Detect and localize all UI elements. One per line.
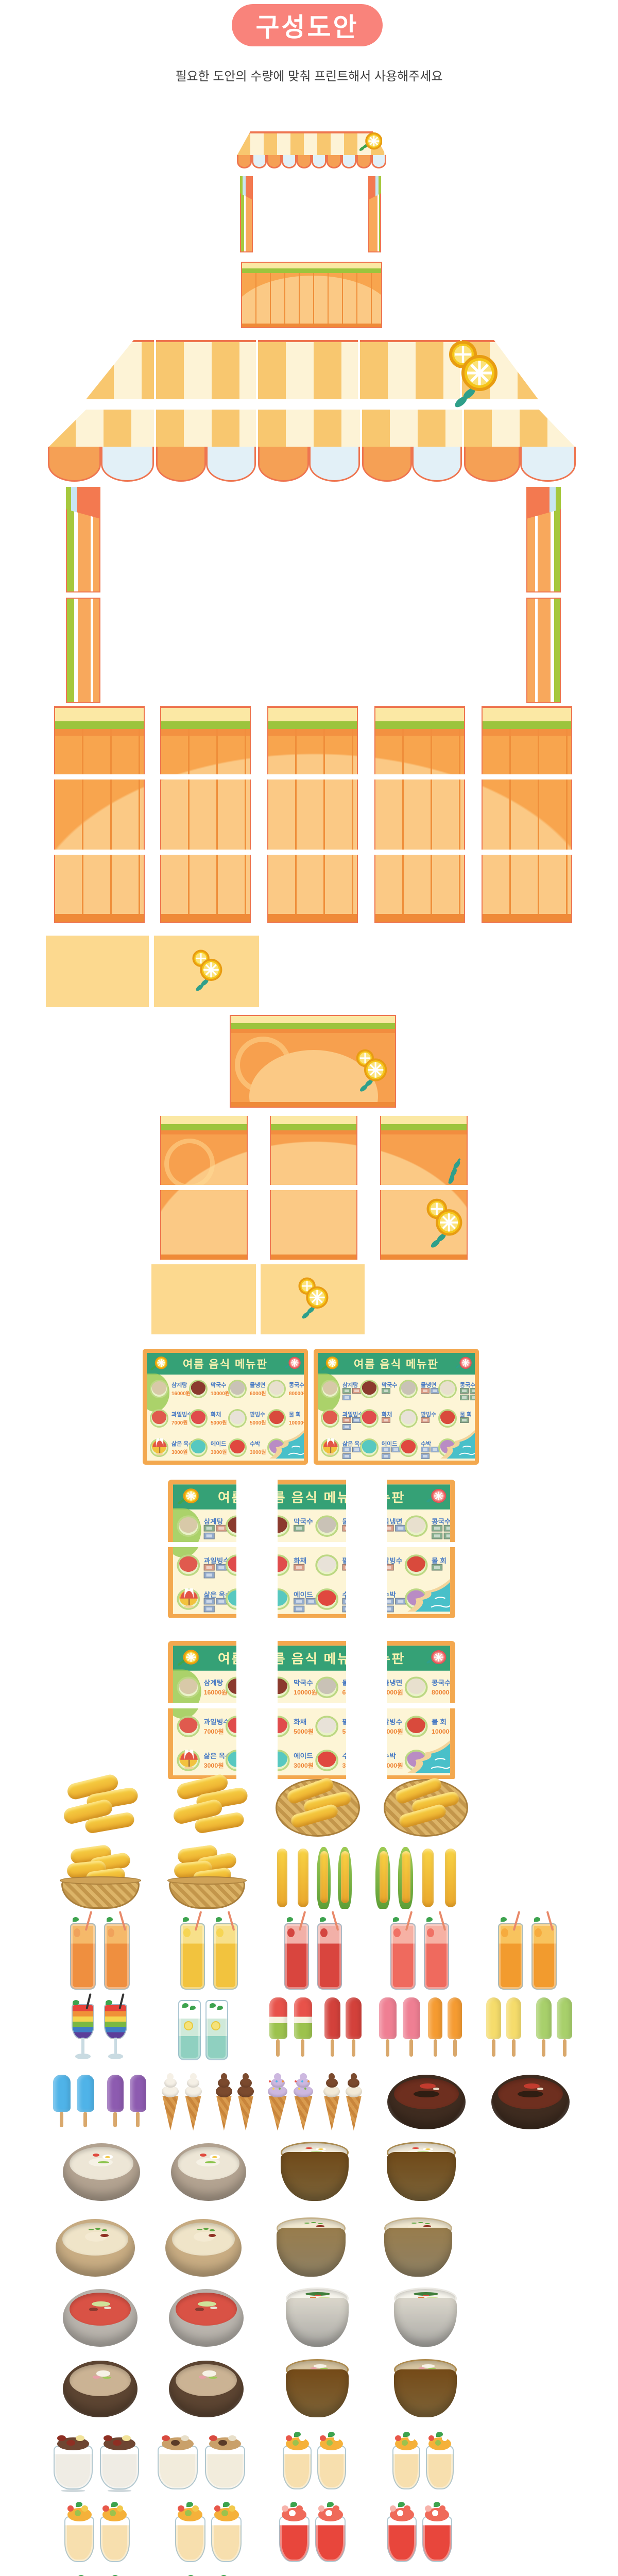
menu-strip-money-c1r2: 여름 음식 메뉴판 삼계탕막국수물냉면콩국수과일빙수화채팥빙수물 회삶은 옥수수… — [168, 1547, 236, 1618]
topping-piece — [67, 2505, 74, 2512]
cocktail-glass — [104, 2004, 127, 2039]
popsicle — [379, 1997, 397, 2039]
popsicle-stick — [434, 2039, 437, 2057]
awning-scallop — [258, 447, 309, 482]
menu-item: 삼계탕 — [321, 1379, 359, 1405]
counter-band-green — [268, 721, 357, 729]
popsicle — [448, 1997, 462, 2039]
menu-item: 콩국수 — [405, 1547, 450, 1550]
popsicle-stick — [136, 2112, 140, 2127]
topping-piece — [218, 2440, 227, 2446]
menu-item: 에이드3000원 — [278, 1749, 314, 1775]
menu-item: 화채 — [360, 1408, 398, 1435]
menu-item-photo — [278, 1716, 290, 1737]
food-fruit-parfait-pair — [390, 2433, 456, 2492]
counter-slats — [161, 855, 250, 923]
counter-base-band — [55, 914, 144, 923]
popsicle-stick — [386, 2039, 389, 2057]
topping-piece — [192, 2505, 199, 2512]
counter-piece-r3c3 — [267, 855, 358, 923]
banknote-icon — [342, 1424, 351, 1430]
bowl-shape — [286, 2298, 349, 2347]
cone-body — [267, 2096, 288, 2130]
garnish — [93, 2376, 100, 2379]
menu-item: 물냉면6000원 — [315, 1708, 346, 1711]
food-mojito-pair — [174, 1995, 233, 2062]
lemon-decor-icon — [187, 947, 225, 1003]
garnish — [98, 2161, 109, 2163]
menu-item-price: 3000원 — [171, 1448, 187, 1455]
awning-bottom-piece-2 — [156, 410, 256, 482]
menu-item-price: 80000원 — [289, 1389, 304, 1397]
menu-item-price: 3000원 — [387, 1760, 403, 1769]
mint-leaf — [111, 2502, 118, 2507]
banknote-inner — [423, 1419, 427, 1421]
food-kongguksu-brass-bowl — [272, 2141, 357, 2204]
menu-item-photo — [189, 1380, 208, 1398]
menu-item-name: 수박 — [250, 1439, 260, 1448]
bowl-content — [62, 2223, 128, 2255]
counter-base-band — [268, 914, 357, 923]
menu-item-photo — [321, 1380, 339, 1398]
food-naengmyeon-dark-bowl — [166, 2358, 247, 2420]
banknote-inner — [387, 1527, 391, 1530]
menu-board-header: 여름 음식 메뉴판 — [173, 1646, 236, 1671]
banknote-inner — [387, 1566, 391, 1569]
mint-leaf — [393, 1917, 399, 1922]
topping-piece — [296, 2505, 303, 2512]
food-strawberry-ade-pair — [280, 1914, 346, 1991]
menu-item-photo — [226, 1676, 236, 1698]
mint-leaf — [320, 1917, 326, 1922]
sign-band-green — [381, 1124, 467, 1130]
banknote-icon — [294, 1525, 304, 1532]
food-chocolate-cone-pair — [212, 2072, 257, 2132]
menu-item-photo — [228, 1438, 247, 1457]
food-mango-juice-pair — [494, 1914, 561, 1991]
counter-slats — [375, 855, 464, 923]
menu-item-photo — [278, 1588, 290, 1610]
menu-board-header: 여름 음식 메뉴판 — [278, 1646, 346, 1671]
corn-cob — [402, 1851, 410, 1903]
banknote-icon — [421, 1388, 430, 1394]
popsicle — [130, 2075, 147, 2112]
banknote-inner — [423, 1455, 427, 1458]
menu-item-name: 막국수 — [294, 1678, 313, 1687]
sign-band-orange — [271, 1130, 356, 1134]
food-red-popsicle-pair — [320, 1995, 366, 2062]
menu-item: 에이드3000원 — [226, 1749, 236, 1775]
food-rainbow-cone-pair — [264, 2072, 317, 2132]
banknote-inner — [218, 1600, 224, 1603]
menu-item: 물냉면6000원 — [315, 1675, 346, 1703]
fruit-garnish — [501, 1928, 508, 1938]
menu-strip-window: 여름 음식 메뉴판 삼계탕막국수물냉면콩국수과일빙수화채팥빙수물 회삶은 옥수수… — [168, 1547, 236, 1618]
menu-item-photo — [360, 1438, 379, 1457]
sign-base — [271, 1255, 356, 1260]
menu-item: 막국수 — [360, 1379, 398, 1405]
popsicle — [324, 1997, 340, 2039]
banknote-icon — [204, 1572, 215, 1579]
banknote-inner — [472, 1396, 475, 1399]
fruit-garnish — [74, 1928, 81, 1938]
popsicle — [107, 2075, 124, 2112]
banknote-inner — [393, 1448, 398, 1451]
food-watermelon-ade-pair — [386, 1914, 453, 1991]
counter-piece-r2c1 — [54, 779, 145, 850]
garnish — [209, 2377, 217, 2379]
awning-lemon-decor-icon — [440, 336, 502, 425]
menu-item: 팥빙수5000원 — [228, 1408, 266, 1435]
glass-stem — [81, 2038, 84, 2054]
counter-piece-r2c4 — [374, 779, 465, 850]
banknote-icon — [342, 1606, 346, 1613]
menu-item: 콩국수80000원 — [405, 1675, 450, 1703]
menu-board-header: 여름 음식 메뉴판 — [387, 1484, 450, 1510]
menu-strip-window: 여름 음식 메뉴판 삼계탕막국수물냉면콩국수과일빙수화채팥빙수물 회삶은 옥수수… — [168, 1480, 236, 1542]
menu-strip-window: 여름 음식 메뉴판 삼계탕막국수물냉면콩국수과일빙수화채팥빙수물 회삶은 옥수수… — [387, 1480, 455, 1542]
food-samgyetang-cup-bowl — [268, 2216, 354, 2279]
page-subtitle: 필요한 도안의 수량에 맞춰 프린트해서 사용해주세요 — [0, 66, 618, 84]
mint-leaf — [426, 1917, 433, 1922]
topping-piece — [333, 2505, 339, 2512]
sign-band-green — [271, 1124, 356, 1130]
banknote-icon — [432, 1564, 442, 1571]
food-patbingsu-pair — [50, 2433, 143, 2492]
garnish — [210, 2307, 217, 2309]
menu-item-price: 10000원 — [289, 1418, 304, 1426]
banknote-inner — [345, 1389, 349, 1392]
mint-leaf — [327, 2502, 334, 2507]
fruit-garnish — [535, 1928, 542, 1938]
counter-piece-r2c3 — [267, 779, 358, 850]
banknote-inner — [434, 1527, 440, 1530]
cone-body — [345, 2096, 363, 2130]
banknote-inner — [387, 1607, 391, 1611]
banknote-inner — [387, 1600, 391, 1603]
garnish — [92, 2301, 110, 2307]
dessert-glass — [100, 2516, 130, 2562]
menu-item: 물냉면 — [387, 1514, 403, 1542]
food-vegetable-white-bowl — [386, 2286, 465, 2349]
dessert-glass — [392, 2446, 420, 2489]
menu-item-price: 6000원 — [387, 1687, 403, 1696]
menu-item-name: 화채 — [294, 1717, 306, 1726]
banknote-icon — [444, 1533, 450, 1539]
popsicle-stick — [301, 2039, 304, 2057]
dessert-glass — [205, 2446, 245, 2489]
corn-cob — [422, 1849, 434, 1907]
menu-item: 물냉면6000원 — [228, 1379, 266, 1405]
menu-item-name: 콩국수 — [432, 1678, 450, 1687]
mint-leaf — [190, 2006, 196, 2010]
menu-item-photo — [405, 1716, 428, 1737]
food-rainbow-cocktail-pair — [66, 1995, 134, 2062]
mint-leaf — [217, 2006, 223, 2010]
banknote-inner — [354, 1389, 359, 1392]
mini-awning-scallop — [252, 155, 267, 168]
food-fruit-punch-pair — [172, 2503, 245, 2565]
topping-piece — [228, 2435, 237, 2442]
bowl-shape — [387, 2152, 456, 2201]
drink-glass — [284, 1923, 310, 1990]
menu-item-photo — [177, 1676, 200, 1698]
garnish — [203, 2228, 209, 2230]
banknote-icon — [421, 1453, 430, 1459]
mint-leaf — [216, 1917, 222, 1922]
bowl-content — [70, 2293, 131, 2325]
mint-leaf — [328, 2432, 335, 2437]
lemon-slice-icon — [150, 1355, 167, 1375]
banknote-icon — [432, 1525, 442, 1532]
mint-leaf — [436, 2432, 443, 2437]
signboard-piece-r2c3 — [380, 1190, 468, 1260]
menu-item-photo — [267, 1380, 286, 1398]
menu-item-name: 물냉면 — [387, 1678, 402, 1687]
food-samgyetang-brass-bowl — [52, 2216, 139, 2279]
banknote-inner — [207, 1527, 212, 1530]
menu-item-photo — [315, 1515, 338, 1537]
menu-strip-price-c3r2: 여름 음식 메뉴판 삼계탕16000원막국수10000원물냉면6000원콩국수8… — [387, 1708, 455, 1779]
garnish — [89, 2229, 94, 2231]
menu-board-money: 여름 음식 메뉴판 삼계탕막국수물냉면콩국수과일빙수화채팥빙수물 회삶은 옥수수… — [314, 1349, 479, 1465]
drink-glass — [70, 1923, 96, 1990]
menu-strip-money-c2r2: 여름 음식 메뉴판 삼계탕막국수물냉면콩국수과일빙수화채팥빙수물 회삶은 옥수수… — [278, 1547, 346, 1618]
popsicle-stick — [563, 2039, 566, 2057]
menu-item-price: 10000원 — [294, 1687, 317, 1696]
food-fruit-punch-pair — [62, 2503, 132, 2565]
menu-board-title: 여름 음식 메뉴판 — [387, 1488, 405, 1506]
menu-item: 삼계탕 — [177, 1514, 224, 1542]
mint-leaf — [290, 2502, 297, 2507]
counter-band-cream — [161, 708, 250, 721]
lemon-slice-icon — [177, 1648, 198, 1671]
bowl-content — [172, 2223, 235, 2255]
menu-item-price: 3000원 — [294, 1760, 314, 1769]
counter-piece-r2c5 — [482, 779, 572, 850]
popsicle — [428, 1997, 442, 2039]
cone-body — [237, 2096, 255, 2130]
banknote-icon — [432, 1533, 442, 1539]
popsicle — [53, 2075, 71, 2112]
banknote-icon — [342, 1417, 351, 1423]
bowl-shape — [384, 2228, 452, 2277]
counter-band-cream — [268, 708, 357, 721]
banknote-inner — [384, 1448, 388, 1451]
food-naengmyeon-gold-bowl — [278, 2358, 356, 2420]
lemon-slice — [184, 2021, 193, 2030]
menu-board-inner: 여름 음식 메뉴판 삼계탕16000원막국수10000원물냉면6000원콩국수8… — [278, 1646, 346, 1703]
menu-item: 콩국수80000원 — [405, 1708, 450, 1711]
menu-strip-window: 여름 음식 메뉴판 삼계탕막국수물냉면콩국수과일빙수화채팥빙수물 회삶은 옥수수… — [278, 1547, 346, 1618]
corn-cob — [341, 1851, 349, 1903]
popsicle — [403, 1997, 420, 2039]
mini-panel-band-green — [242, 268, 381, 273]
menu-item: 물냉면6000원 — [387, 1675, 403, 1703]
popsicle — [294, 1997, 313, 2039]
menu-item: 물냉면6000원 — [387, 1708, 403, 1711]
topping-piece — [425, 2505, 431, 2512]
counter-base-band — [375, 914, 464, 923]
awning-top-piece-2 — [156, 340, 256, 399]
topping-piece — [318, 2505, 325, 2512]
menu-item: 물냉면 — [315, 1547, 346, 1550]
counter-band-cream — [375, 708, 464, 721]
awning-scallop — [464, 447, 520, 482]
food-fruit-parfait-pair — [280, 2433, 349, 2492]
counter-band-green — [375, 721, 464, 729]
garnish — [310, 2367, 317, 2369]
mint-leaf — [534, 1917, 540, 1922]
basket-rim — [167, 1876, 247, 1885]
garnish — [418, 2222, 423, 2223]
icecream-tip — [190, 2073, 197, 2080]
menu-board-money: 여름 음식 메뉴판 삼계탕막국수물냉면콩국수과일빙수화채팥빙수물 회삶은 옥수수… — [168, 1480, 236, 1542]
dessert-glass — [279, 2516, 310, 2562]
menu-board-title: 여름 음식 메뉴판 — [218, 1649, 236, 1667]
mini-awning-scallop — [327, 155, 341, 168]
fruit-garnish — [393, 1928, 401, 1938]
menu-item-price: 3000원 — [211, 1448, 227, 1455]
beach-umbrella-icon — [178, 1750, 200, 1773]
topping-piece — [439, 2505, 445, 2512]
sign-band-cream — [161, 1116, 247, 1124]
side-panel-piece-1 — [46, 936, 149, 1007]
garnish — [425, 2223, 430, 2224]
counter-slats — [375, 779, 464, 850]
bowl-shape — [286, 2369, 349, 2418]
garnish — [315, 2295, 321, 2296]
beach-umbrella-icon — [322, 1438, 339, 1459]
menu-item: 삼계탕16000원 — [177, 1708, 224, 1711]
food-kongguksu-brass-bowl — [378, 2141, 465, 2204]
menu-item: 화채 — [278, 1553, 314, 1584]
banknote-inner — [345, 1607, 346, 1611]
bowl-shape — [394, 2369, 457, 2418]
food-boiled-corn-pile — [168, 1775, 256, 1841]
sign-band-green — [231, 1023, 395, 1029]
banknote-icon — [387, 1525, 394, 1532]
counter-base-band — [483, 914, 571, 923]
banknote-icon — [382, 1453, 390, 1459]
menu-item-photo — [405, 1676, 428, 1698]
food-blue-popsicle-pair — [48, 2072, 99, 2132]
banknote-inner — [462, 1419, 467, 1421]
banknote-icon — [342, 1388, 351, 1394]
counter-band-green — [483, 721, 571, 729]
menu-item: 막국수10000원 — [226, 1675, 236, 1703]
garnish — [195, 2308, 204, 2311]
menu-item-photo — [315, 1588, 338, 1610]
mint-leaf — [182, 2003, 188, 2008]
menu-item-name: 팥빙수 — [387, 1717, 402, 1726]
cone-body — [161, 2096, 180, 2130]
mint-leaf — [434, 2502, 440, 2507]
sign-band-orange — [161, 1130, 247, 1134]
dessert-glass — [387, 2516, 417, 2562]
counter-piece-r1c5 — [482, 706, 572, 774]
banknote-icon — [387, 1598, 394, 1605]
popsicle-stick — [409, 2039, 413, 2057]
garnish — [102, 2229, 107, 2231]
food-mixed-bingsu-pair — [154, 2433, 249, 2492]
side-panel-piece-4 — [261, 1264, 365, 1334]
counter-band-orange — [55, 729, 144, 736]
menu-item: 콩국수 — [438, 1379, 475, 1405]
cocktail-glass — [72, 2004, 95, 2039]
basket-rim — [60, 1876, 141, 1885]
menu-item-price: 7000원 — [204, 1726, 224, 1735]
post-piece-2 — [66, 598, 100, 703]
cone-body — [215, 2096, 233, 2130]
garnish — [412, 2147, 419, 2149]
sign-band-orange — [231, 1029, 395, 1033]
banknote-inner — [447, 1527, 450, 1530]
awning-top-piece-1 — [86, 340, 154, 399]
menu-item: 에이드 — [278, 1587, 314, 1614]
menu-item: 막국수 — [278, 1514, 314, 1542]
garnish — [414, 2091, 439, 2097]
food-purple-popsicle-pair — [102, 2072, 151, 2132]
menu-item: 팥빙수 — [387, 1553, 403, 1584]
mini-awning-scallop — [267, 155, 282, 168]
menu-strip-window: 여름 음식 메뉴판 삼계탕막국수물냉면콩국수과일빙수화채팥빙수물 회삶은 옥수수… — [387, 1547, 455, 1618]
mint-leaf — [183, 1917, 189, 1922]
menu-board-price: 여름 음식 메뉴판 삼계탕16000원막국수10000원물냉면6000원콩국수8… — [387, 1708, 455, 1779]
banknote-inner — [218, 1566, 224, 1569]
drink-glass — [390, 1923, 416, 1990]
counter-base-band — [161, 914, 250, 923]
banknote-inner — [296, 1527, 302, 1530]
page-title-badge: 구성도안 — [232, 4, 383, 46]
menu-item-photo — [315, 1750, 338, 1771]
garnish — [100, 2234, 108, 2237]
menu-item-name: 삼계탕 — [204, 1678, 224, 1687]
banknote-icon — [444, 1525, 450, 1532]
menu-strip-window: 여름 음식 메뉴판 삼계탕막국수물냉면콩국수과일빙수화채팥빙수물 회삶은 옥수수… — [278, 1480, 346, 1542]
menu-item-photo — [226, 1515, 236, 1537]
counter-band-green — [55, 721, 144, 729]
counter-slats — [483, 855, 571, 923]
corn-cob — [298, 1849, 308, 1907]
banknote-inner — [384, 1455, 388, 1458]
awning-scallop — [520, 447, 576, 482]
dessert-glass — [317, 2446, 346, 2489]
food-samgyetang-cup-bowl — [376, 2216, 460, 2279]
counter-piece-r1c3 — [267, 706, 358, 774]
dessert-glass — [211, 2516, 242, 2562]
menu-item-name: 화채 — [211, 1410, 221, 1418]
topping-piece — [171, 2440, 180, 2446]
topping-piece — [122, 2435, 130, 2442]
awning-top-piece-3 — [258, 340, 358, 399]
bowl-content — [70, 2147, 133, 2179]
mint-leaf — [210, 2003, 216, 2008]
sign-lemon-decor-icon — [351, 1046, 390, 1104]
food-watermelon-punch-pair — [276, 2503, 349, 2565]
banknote-inner — [462, 1389, 467, 1392]
menu-item: 팥빙수 — [399, 1408, 437, 1435]
topping-piece — [402, 2440, 408, 2446]
garnish — [320, 2368, 328, 2369]
menu-item-name: 팥빙수 — [342, 1717, 346, 1726]
menu-board-price: 여름 음식 메뉴판 삼계탕16000원막국수10000원물냉면6000원콩국수8… — [387, 1641, 455, 1703]
menu-item-name: 콩국수 — [289, 1381, 304, 1389]
banknote-inner — [462, 1396, 467, 1399]
menu-item-price: 16000원 — [204, 1687, 228, 1696]
banknote-inner — [447, 1534, 450, 1537]
lemon-slice-icon — [177, 1487, 198, 1510]
